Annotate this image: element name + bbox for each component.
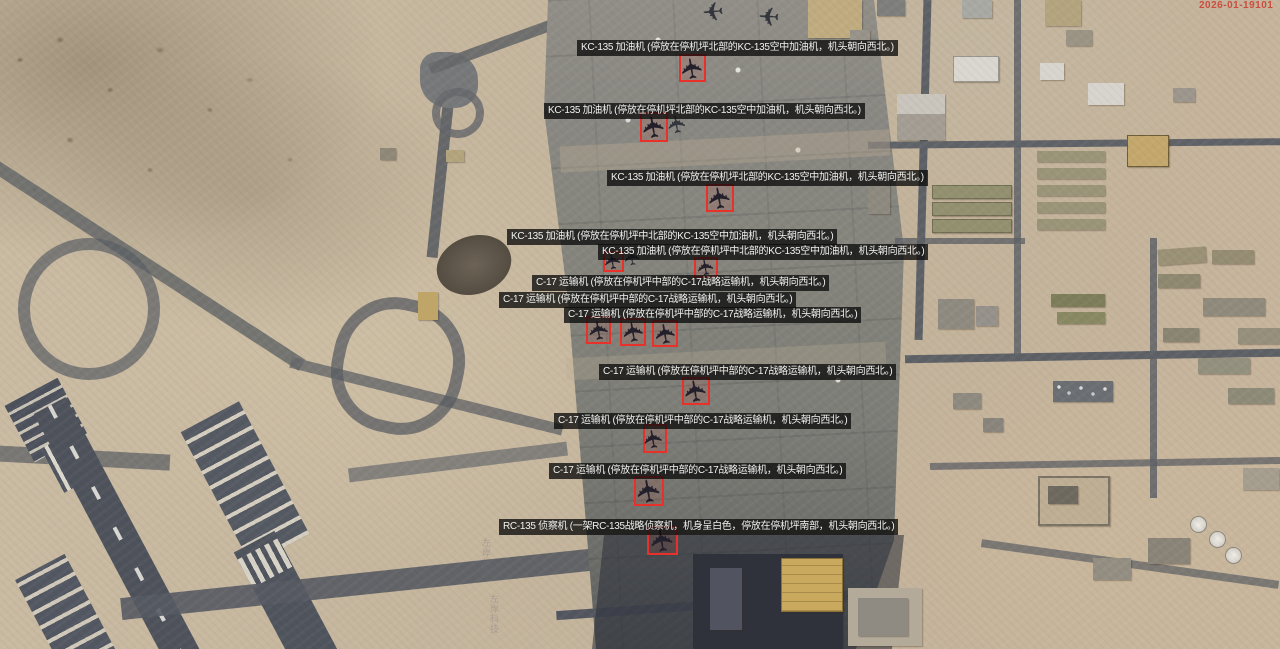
c17-transport-bounding-box[interactable]: ✈ (652, 320, 678, 347)
kc135-tanker-bounding-box[interactable]: ✈ (679, 54, 706, 82)
timestamp-watermark: 2026-01-19101 (1199, 0, 1273, 11)
c17-transport-bounding-box[interactable]: ✈ (634, 476, 664, 506)
aircraft-icon: ✈ (676, 54, 708, 82)
c17-transport-label[interactable]: C-17 运输机 (停放在停机坪中部的C-17战略运输机，机头朝向西北。) (599, 364, 896, 380)
aircraft-icon: ✈ (631, 475, 667, 506)
c17-transport-label[interactable]: C-17 运输机 (停放在停机坪中部的C-17战略运输机，机头朝向西北。) (554, 413, 851, 429)
kc135-tanker-label[interactable]: KC-135 加油机 (停放在停机坪中北部的KC-135空中加油机，机头朝向西北… (598, 244, 928, 260)
satellite-map[interactable]: ✈✈✈✈ ✈KC-135 加油机 (停放在停机坪北部的KC-135空中加油机，机… (0, 0, 1280, 649)
c17-transport-label[interactable]: C-17 运输机 (停放在停机坪中部的C-17战略运输机，机头朝向西北。) (499, 292, 796, 308)
kc135-tanker-bounding-box[interactable]: ✈ (706, 184, 734, 212)
kc135-tanker-label[interactable]: KC-135 加油机 (停放在停机坪北部的KC-135空中加油机，机头朝向西北。… (577, 40, 898, 56)
faint-watermark: 左岸科技 (480, 538, 493, 578)
aircraft-icon: ✈ (703, 183, 736, 212)
c17-transport-label[interactable]: C-17 运输机 (停放在停机坪中部的C-17战略运输机，机头朝向西北。) (564, 307, 861, 323)
faint-watermark: 左岸科技 (488, 594, 501, 634)
c17-transport-label[interactable]: C-17 运输机 (停放在停机坪中部的C-17战略运输机，机头朝向西北。) (549, 463, 846, 479)
building (418, 292, 438, 320)
kc135-tanker-label[interactable]: KC-135 加油机 (停放在停机坪中北部的KC-135空中加油机，机头朝向西北… (507, 229, 837, 245)
building (781, 558, 843, 612)
rc135-recon-label[interactable]: RC-135 侦察机 (一架RC-135战略侦察机，机身呈白色，停放在停机坪南部… (499, 519, 898, 535)
aircraft-icon: ✈ (641, 426, 669, 451)
c17-transport-label[interactable]: C-17 运输机 (停放在停机坪中部的C-17战略运输机，机头朝向西北。) (532, 275, 829, 291)
kc135-tanker-label[interactable]: KC-135 加油机 (停放在停机坪北部的KC-135空中加油机，机头朝向西北。… (607, 170, 928, 186)
kc135-tanker-label[interactable]: KC-135 加油机 (停放在停机坪北部的KC-135空中加油机，机头朝向西北。… (544, 103, 865, 119)
aircraft-icon: ✈ (650, 320, 681, 347)
building (710, 568, 742, 630)
building (858, 598, 908, 636)
aircraft-icon: ✈ (679, 376, 712, 405)
c17-transport-bounding-box[interactable]: ✈ (682, 377, 710, 405)
